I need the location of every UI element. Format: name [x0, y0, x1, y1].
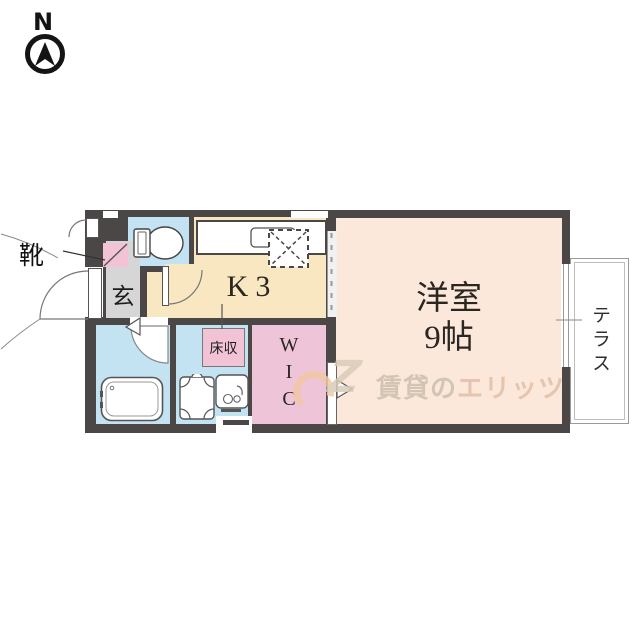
wic-letter-c: C [282, 386, 295, 413]
shoe-cabinet-icon [103, 243, 128, 267]
toilet-door-opening [165, 264, 195, 274]
terrace-inner-line: テラス [574, 262, 625, 420]
kitchen-label: K3 [197, 270, 307, 304]
entrance-label: 玄 [106, 277, 140, 311]
toilet-icon [132, 224, 186, 262]
floor-storage-box: 床収 [202, 328, 245, 367]
meter-box-opening [103, 211, 118, 218]
bathtub-icon [100, 376, 164, 422]
meter-box-door-leaf [86, 218, 99, 238]
main-room-label-size: 9帖 [336, 319, 562, 358]
washroom-window-sill [223, 420, 249, 425]
toilet-door-leaf [162, 266, 169, 306]
north-arrow-glyph [30, 39, 60, 69]
shoes-label: 靴 [19, 236, 44, 272]
wic-door [327, 362, 337, 425]
front-door-swing-arc [40, 271, 88, 319]
refrigerator-space-icon [268, 229, 309, 268]
wic-letter-i: I [286, 359, 293, 386]
terrace-window-glass [563, 264, 569, 367]
vanity-sink-icon [215, 374, 249, 414]
compass-north-label: N [33, 8, 53, 36]
kitchen-window [291, 211, 328, 218]
main-room-label-name: 洋室 [336, 280, 562, 319]
washing-machine-icon [179, 374, 215, 420]
terrace-label: テラス [586, 305, 613, 377]
north-arrow-icon [25, 34, 65, 74]
meter-box-swing-arc [69, 220, 86, 237]
wic-label: W I C [252, 332, 326, 413]
terrace-window [561, 264, 571, 367]
terrace-area: テラス [570, 258, 629, 424]
floor-storage-label: 床収 [210, 338, 238, 358]
wic-letter-w: W [280, 332, 299, 359]
front-door-leaf [88, 268, 102, 319]
bathroom-door-opening [130, 317, 168, 326]
main-room-label: 洋室 9帖 [336, 280, 562, 358]
